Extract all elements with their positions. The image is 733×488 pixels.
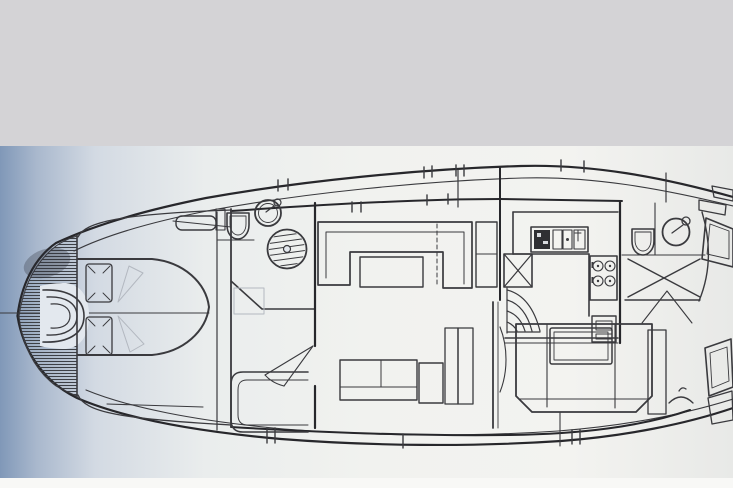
stove-knob (592, 277, 594, 283)
gray-top-band (0, 0, 733, 146)
shower-drain (284, 246, 291, 253)
icebox-slit (543, 241, 548, 244)
scanned-deck-plan-page (0, 0, 733, 488)
sink-drain (566, 238, 569, 241)
icebox-slit (537, 233, 541, 237)
icebox-icon (534, 230, 550, 249)
paper-bottom-strip (0, 478, 733, 488)
deck-plan-figure (0, 0, 733, 488)
stove-knob (592, 262, 594, 268)
